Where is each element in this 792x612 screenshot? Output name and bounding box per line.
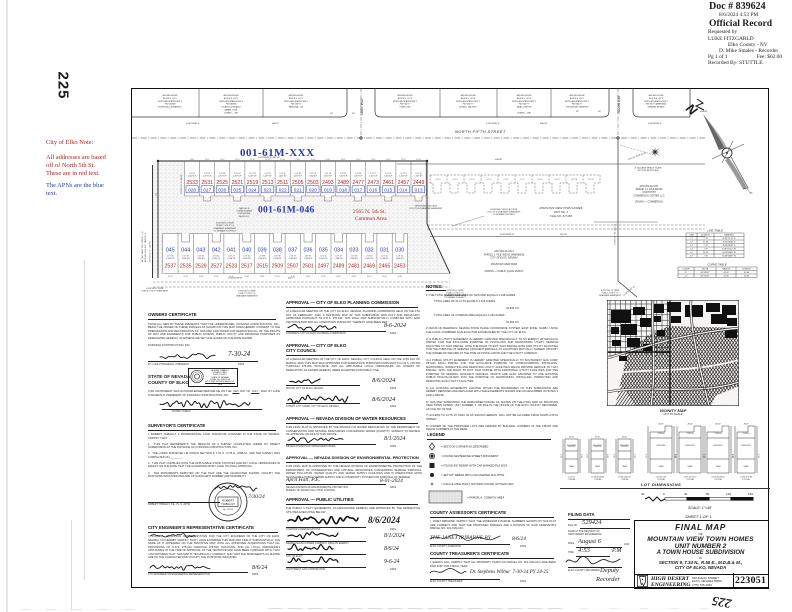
svg-text:2533: 2533 <box>186 180 198 186</box>
svg-text:41.00': 41.00' <box>336 276 341 278</box>
svg-text:40.00': 40.00' <box>658 423 664 426</box>
svg-text:LOTS 32,34,36: LOTS 32,34,36 <box>591 475 605 478</box>
svg-text:15.10': 15.10' <box>220 159 225 161</box>
svg-text:1,467 S.F.: 1,467 S.F. <box>233 175 242 177</box>
svg-text:2449: 2449 <box>413 180 425 186</box>
svg-text:BLOCK G, LOT 7: BLOCK G, LOT 7 <box>163 98 178 100</box>
svg-text:DELTA: DELTA <box>702 268 709 271</box>
svg-text:FILE 263604: FILE 263604 <box>226 103 237 106</box>
svg-text:41.00': 41.00' <box>382 276 387 278</box>
svg-text:2481: 2481 <box>348 264 360 270</box>
svg-text:PORCH: PORCH <box>658 433 665 435</box>
svg-text:1,467 S.F.: 1,467 S.F. <box>278 175 287 177</box>
svg-text:30.5': 30.5' <box>635 453 637 458</box>
svg-text:204.88': 204.88' <box>494 158 503 161</box>
svg-text:2517: 2517 <box>241 264 253 270</box>
svg-text:1,568 S.F.: 1,568 S.F. <box>289 258 298 260</box>
svg-text:30': 30' <box>598 111 601 113</box>
svg-text:YARD: YARD <box>569 465 575 468</box>
svg-text:024: 024 <box>248 188 256 194</box>
svg-text:APN 001-612-001: APN 001-612-001 <box>288 94 304 97</box>
svg-text:2523: 2523 <box>226 264 238 270</box>
svg-text:BUILDING: BUILDING <box>714 445 723 447</box>
svg-text:042: 042 <box>212 248 221 254</box>
svg-text:001-61M-046: 001-61M-046 <box>258 206 315 216</box>
svg-text:LOT 4: LOT 4 <box>470 178 475 181</box>
svg-text:S 0°01'12" W 259.16': S 0°01'12" W 259.16' <box>615 223 617 245</box>
svg-text:41.00': 41.00' <box>260 276 265 278</box>
svg-text:N 89°58'48" W: N 89°58'48" W <box>500 233 515 236</box>
svg-text:001-61M-XXX: 001-61M-XXX <box>240 147 315 159</box>
svg-text:LOT 7: LOT 7 <box>521 179 527 181</box>
svg-text:2513: 2513 <box>262 180 274 186</box>
svg-text:BUILDING: BUILDING <box>686 445 695 447</box>
svg-text:RAFAEL, ET AL: RAFAEL, ET AL <box>224 109 237 112</box>
svg-text:= SECTION CORNER AS DESCRIBED: = SECTION CORNER AS DESCRIBED <box>441 445 488 449</box>
svg-text:LINE: LINE <box>689 235 694 237</box>
svg-text:NORTH 40 ESTATES UNIT 1: NORTH 40 ESTATES UNIT 1 <box>456 100 480 103</box>
svg-text:GENERAL SEVARG: GENERAL SEVARG <box>648 106 665 109</box>
svg-text:2489: 2489 <box>333 264 345 270</box>
svg-text:028: 028 <box>188 188 196 194</box>
svg-text:41.00': 41.00' <box>352 276 357 278</box>
svg-text:015: 015 <box>384 188 392 194</box>
svg-text:2519: 2519 <box>247 180 259 186</box>
svg-text:CURVE TABLE: CURVE TABLE <box>707 263 726 267</box>
svg-text:1,568 S.F.: 1,568 S.F. <box>166 258 175 260</box>
svg-text:NORTH 40 ESTATES UNIT 1: NORTH 40 ESTATES UNIT 1 <box>284 100 308 103</box>
svg-text:BUILDING: BUILDING <box>657 445 666 447</box>
svg-text:TAOMA WAY: TAOMA WAY <box>617 94 621 114</box>
svg-text:TYPICAL: TYPICAL <box>686 478 694 481</box>
svg-text:1"=40': 1"=40' <box>745 188 754 196</box>
svg-text:13.00: 13.00 <box>723 276 729 278</box>
svg-text:APN 001-612-002: APN 001-612-002 <box>223 94 239 97</box>
svg-text:033: 033 <box>349 248 358 254</box>
svg-text:PORCH: PORCH <box>715 433 722 435</box>
svg-text:025: 025 <box>233 188 241 194</box>
svg-text:APN 001-012-015 PARCEL 2: APN 001-012-015 PARCEL 2 <box>144 232 147 263</box>
svg-text:15.10': 15.10' <box>326 159 331 161</box>
svg-text:MOUNTAIN VIEW PARK: MOUNTAIN VIEW PARK <box>491 263 518 266</box>
svg-text:90°00'00": 90°00'00" <box>701 276 710 278</box>
svg-text:027: 027 <box>203 188 211 194</box>
svg-text:FILE 163777: FILE 163777 <box>400 104 412 106</box>
svg-text:2493: 2493 <box>322 180 334 186</box>
svg-text:1,467 S.F.: 1,467 S.F. <box>218 175 227 177</box>
svg-text:41.00': 41.00' <box>199 276 204 278</box>
svg-text:YARD: YARD <box>595 465 601 468</box>
svg-text:S 89°58'48" E: S 89°58'48" E <box>648 122 662 125</box>
svg-text:1.025 ACRES: 1.025 ACRES <box>238 212 251 215</box>
svg-text:41.00': 41.00' <box>214 276 219 278</box>
svg-text:APN 001-612-003: APN 001-612-003 <box>162 94 179 97</box>
svg-text:TYPICAL: TYPICAL <box>657 478 665 481</box>
svg-text:1,568 S.F.: 1,568 S.F. <box>273 258 282 260</box>
svg-text:N 44°58'48" W: N 44°58'48" W <box>722 255 737 258</box>
svg-text:026: 026 <box>218 188 226 194</box>
svg-text:346.03': 346.03' <box>540 122 548 125</box>
svg-text:LOT 31: LOT 31 <box>568 476 574 478</box>
svg-text:15.10': 15.10' <box>401 159 406 161</box>
svg-text:IN CONCRETE PIER: IN CONCRETE PIER <box>638 170 659 172</box>
svg-text:031: 031 <box>380 248 389 254</box>
svg-text:30': 30' <box>330 113 333 115</box>
svg-text:SANDOVAL, LUZ: SANDOVAL, LUZ <box>289 106 304 109</box>
svg-text:LOTS 26,28,30: LOTS 26,28,30 <box>712 476 726 478</box>
svg-text:1,568 S.F.: 1,568 S.F. <box>396 258 405 260</box>
svg-text:TYREK, ORO: TYREK, ORO <box>399 107 411 109</box>
svg-text:APN 001-612-003: APN 001-612-003 <box>516 94 533 97</box>
svg-text:N 89°58'48" W: N 89°58'48" W <box>228 277 243 280</box>
svg-text:2509: 2509 <box>272 264 284 270</box>
svg-text:= CALCULATED POINT, NOTHING FO: = CALCULATED POINT, NOTHING FOUND, NOTHI… <box>441 482 514 486</box>
svg-text:1,467 S.F.: 1,467 S.F. <box>263 175 272 177</box>
svg-text:1,467 S.F.: 1,467 S.F. <box>188 175 197 177</box>
svg-text:2521: 2521 <box>232 180 244 186</box>
svg-text:TYPICAL: TYPICAL <box>568 478 576 481</box>
svg-text:020: 020 <box>309 188 317 194</box>
svg-text:PORCH: PORCH <box>687 433 694 435</box>
svg-text:NORTH FIFTH STREET: NORTH FIFTH STREET <box>455 129 506 134</box>
svg-text:EXISTING PUBLIC ACCESS,: EXISTING PUBLIC ACCESS, <box>490 208 518 211</box>
svg-text:No. 20752: No. 20752 <box>223 509 234 511</box>
svg-text:15.10': 15.10' <box>371 159 376 161</box>
svg-text:TYPICAL: TYPICAL <box>714 478 722 481</box>
svg-text:41.00': 41.00' <box>306 276 311 278</box>
svg-text:30.5': 30.5' <box>759 453 761 458</box>
svg-text:30': 30' <box>576 111 579 113</box>
svg-text:013: 013 <box>415 188 423 194</box>
svg-text:LOT 2: LOT 2 <box>436 179 441 181</box>
svg-text:2527: 2527 <box>210 264 222 270</box>
svg-text:YARD: YARD <box>658 465 664 468</box>
svg-text:LOT 9: LOT 9 <box>555 179 560 181</box>
svg-text:15.10': 15.10' <box>250 159 255 161</box>
svg-text:YOUNGBLUM, CAMERON: YOUNGBLUM, CAMERON <box>566 106 589 109</box>
svg-text:NORTH 40 ESTATES UNIT 1: NORTH 40 ESTATES UNIT 1 <box>644 100 668 103</box>
svg-text:2535: 2535 <box>180 264 192 270</box>
svg-text:1,568 S.F.: 1,568 S.F. <box>365 258 374 260</box>
svg-text:LENGTH: LENGTH <box>742 269 751 271</box>
svg-text:30': 30' <box>352 113 355 115</box>
svg-text:41.00': 41.00' <box>183 276 188 278</box>
svg-text:S 89°58'48" E: S 89°58'48" E <box>723 241 736 244</box>
svg-text:DRAINAGE EASEMENT: DRAINAGE EASEMENT <box>599 294 622 297</box>
svg-text:41.00': 41.00' <box>168 276 173 278</box>
svg-text:043: 043 <box>196 248 205 254</box>
svg-text:= PARCEL A, COMMON AREA: = PARCEL A, COMMON AREA <box>467 496 504 500</box>
svg-text:023: 023 <box>264 188 272 194</box>
svg-text:TYPICAL: TYPICAL <box>594 478 602 481</box>
svg-text:1,467 S.F.: 1,467 S.F. <box>414 175 423 177</box>
svg-text:36.00': 36.00' <box>743 424 749 426</box>
svg-text:71.5': 71.5' <box>675 453 677 458</box>
svg-text:31.00': 31.00' <box>569 437 575 439</box>
svg-text:31.00': 31.00' <box>622 437 628 439</box>
svg-text:ZAVAL, LYNETTE: ZAVAL, LYNETTE <box>516 106 533 109</box>
svg-text:30.5': 30.5' <box>582 453 584 458</box>
svg-text:PUBLIC UTILITY EASEMENT: PUBLIC UTILITY EASEMENT <box>142 289 170 292</box>
svg-text:040: 040 <box>242 248 251 254</box>
svg-text:NORTH 40 ESTATES UNIT 2: NORTH 40 ESTATES UNIT 2 <box>219 100 243 103</box>
svg-text:1,467 S.F.: 1,467 S.F. <box>384 175 393 177</box>
svg-text:LOT 8: LOT 8 <box>538 179 543 181</box>
svg-text:= SET 5/8" REBAR WITH CAP MARK: = SET 5/8" REBAR WITH CAP MARKED PLS 207… <box>441 473 505 477</box>
svg-text:2477: 2477 <box>352 180 364 186</box>
svg-text:1,568 S.F.: 1,568 S.F. <box>212 258 221 260</box>
svg-text:APN 001-612-002: APN 001-612-002 <box>397 94 413 97</box>
svg-text:COMMON AREA: COMMON AREA <box>236 210 252 213</box>
svg-text:71.5': 71.5' <box>703 453 705 458</box>
svg-text:NEW PUBLIC ACCESS: NEW PUBLIC ACCESS <box>415 205 438 208</box>
svg-text:LOTS 15,25,27: LOTS 15,25,27 <box>684 476 698 478</box>
svg-text:71.5': 71.5' <box>587 453 589 458</box>
svg-text:RODRIGUEZ, ALEJANDRO: RODRIGUEZ, ALEJANDRO <box>158 106 182 109</box>
svg-text:2503: 2503 <box>307 180 319 186</box>
svg-text:2465: 2465 <box>379 264 391 270</box>
svg-text:037: 037 <box>288 248 297 254</box>
svg-text:= FOUND CENTERLINE STREET MONU: = FOUND CENTERLINE STREET MONUMENT <box>441 454 499 458</box>
svg-text:TYPICAL: TYPICAL <box>742 478 750 481</box>
svg-text:VELASCO-GONZALEZ: VELASCO-GONZALEZ <box>221 106 241 109</box>
svg-text:COMMERCIAL CENTER, LLC: COMMERCIAL CENTER, LLC <box>633 194 664 197</box>
svg-text:LINE TABLE: LINE TABLE <box>707 229 723 233</box>
svg-text:038: 038 <box>273 248 282 254</box>
svg-text:L4: L4 <box>690 248 693 251</box>
svg-text:2501: 2501 <box>302 264 314 270</box>
svg-text:017: 017 <box>354 188 362 194</box>
svg-text:PARCEL A: PARCEL A <box>239 207 250 210</box>
svg-text:LOTS 33,35,37: LOTS 33,35,37 <box>618 476 632 478</box>
svg-text:CITY OF ELKO, NEVADA: CITY OF ELKO, NEVADA <box>490 257 518 260</box>
svg-text:40.00': 40.00' <box>687 423 693 426</box>
svg-text:APN 001-012-047: APN 001-012-047 <box>639 185 659 188</box>
svg-text:15.10': 15.10' <box>205 159 210 161</box>
svg-text:BLOCK A, LOT 8: BLOCK A, LOT 8 <box>649 97 664 100</box>
svg-text:DRAINAGE EASEMENT: DRAINAGE EASEMENT <box>236 294 259 297</box>
svg-text:15.10': 15.10' <box>280 159 285 161</box>
svg-text:254.88': 254.88' <box>699 110 708 113</box>
svg-text:1,467 S.F.: 1,467 S.F. <box>203 175 212 177</box>
svg-text:15.10': 15.10' <box>356 159 361 161</box>
svg-text:2529: 2529 <box>195 264 207 270</box>
svg-text:BLOCK G, LOT 8: BLOCK G, LOT 8 <box>398 98 413 100</box>
svg-text:ZONING — PUBLIC QUASI PUBLIC: ZONING — PUBLIC QUASI PUBLIC <box>483 270 523 273</box>
svg-text:15.10': 15.10' <box>296 159 301 161</box>
svg-text:1,467 S.F.: 1,467 S.F. <box>324 175 333 177</box>
svg-text:LOTS 29 & 45: LOTS 29 & 45 <box>740 475 753 478</box>
svg-text:2473: 2473 <box>367 180 379 186</box>
svg-text:11.00: 11.00 <box>703 242 709 244</box>
svg-text:APN 001-612-004: APN 001-612-004 <box>460 94 476 97</box>
svg-text:15.10': 15.10' <box>265 159 270 161</box>
svg-text:N: N <box>683 101 700 119</box>
svg-text:1,467 S.F.: 1,467 S.F. <box>369 175 378 177</box>
svg-text:016: 016 <box>369 188 377 194</box>
svg-text:030: 030 <box>395 248 404 254</box>
svg-text:20.42: 20.42 <box>743 275 750 278</box>
svg-text:N 89°58'48" W: N 89°58'48" W <box>722 251 737 254</box>
svg-text:TO REMAIN IN EFFECT: TO REMAIN IN EFFECT <box>214 229 238 232</box>
svg-text:S 44°58'48" E: S 44°58'48" E <box>723 244 736 247</box>
svg-text:L1: L1 <box>690 238 692 240</box>
svg-text:BLOCK G, LOT 4: BLOCK G, LOT 4 <box>461 97 475 100</box>
svg-text:045: 045 <box>166 248 175 254</box>
svg-text:1,568 S.F.: 1,568 S.F. <box>258 258 267 260</box>
svg-text:15.10': 15.10' <box>311 159 316 161</box>
svg-text:30.5': 30.5' <box>608 453 610 458</box>
svg-text:44,662 S.F.: 44,662 S.F. <box>239 215 250 218</box>
svg-text:71.5': 71.5' <box>561 453 563 458</box>
svg-text:LOT 5: LOT 5 <box>487 179 492 181</box>
svg-text:BUILDING: BUILDING <box>620 445 629 447</box>
svg-text:N 45°01'12" E: N 45°01'12" E <box>723 237 737 240</box>
svg-text:044: 044 <box>181 248 190 254</box>
svg-text:THIBAULT: THIBAULT <box>221 502 235 506</box>
svg-text:31.42: 31.42 <box>744 271 750 274</box>
svg-text:15.10': 15.10' <box>235 159 240 161</box>
svg-text:DRAINAGE EASEMENT: DRAINAGE EASEMENT <box>214 227 238 230</box>
svg-text:LOTS 16-24: LOTS 16-24 <box>656 475 666 478</box>
svg-text:Common Area: Common Area <box>355 216 387 222</box>
svg-text:2565 N. 5th St.: 2565 N. 5th St. <box>353 209 386 215</box>
svg-text:2457: 2457 <box>398 180 410 186</box>
svg-text:BLOCK G, LOT 1: BLOCK G, LOT 1 <box>570 98 584 100</box>
svg-text:1,568 S.F.: 1,568 S.F. <box>243 258 252 260</box>
svg-text:1,568 S.F.: 1,568 S.F. <box>197 258 206 260</box>
svg-text:FILE 163777: FILE 163777 <box>572 104 584 106</box>
svg-text:15.10': 15.10' <box>386 159 391 161</box>
svg-text:20.00: 20.00 <box>722 272 729 274</box>
svg-text:11.00: 11.00 <box>703 252 709 254</box>
svg-text:FILE 263604: FILE 263604 <box>165 103 176 106</box>
svg-text:CURVE: CURVE <box>682 269 690 271</box>
svg-text:PARCEL 1A, FILE 202204: PARCEL 1A, FILE 202204 <box>636 188 664 191</box>
svg-text:2507: 2507 <box>287 264 299 270</box>
svg-text:2515: 2515 <box>256 264 268 270</box>
svg-text:BLOCK G, LOT 1: BLOCK G, LOT 1 <box>289 98 303 100</box>
svg-text:FILE 163777: FILE 163777 <box>291 104 303 106</box>
svg-text:ZONING — COMMERCIAL: ZONING — COMMERCIAL <box>634 201 664 204</box>
svg-text:= FOUND 5/8" REBAR WITH CAP MA: = FOUND 5/8" REBAR WITH CAP MARKED PLS 6… <box>441 464 508 468</box>
svg-text:UTILITY & DRAINAGE EASEMENT: UTILITY & DRAINAGE EASEMENT <box>487 211 521 214</box>
svg-text:4" SQUARE BRASS PLATE: 4" SQUARE BRASS PLATE <box>634 167 662 170</box>
svg-text:1,568 S.F.: 1,568 S.F. <box>227 258 236 260</box>
svg-text:2537: 2537 <box>165 264 177 270</box>
svg-text:2505: 2505 <box>292 180 304 186</box>
svg-text:S 45°01'12" W: S 45°01'12" W <box>722 248 736 251</box>
svg-text:BUILDING: BUILDING <box>742 445 751 447</box>
svg-text:71.5': 71.5' <box>733 453 735 458</box>
svg-text:90°00'00": 90°00'00" <box>701 272 710 274</box>
svg-text:UTILITY & DRAINAGE EASEMENT: UTILITY & DRAINAGE EASEMENT <box>409 207 443 210</box>
svg-text:FILE 56777 (AMENDED): FILE 56777 (AMENDED) <box>646 103 667 106</box>
svg-text:LOT 10: LOT 10 <box>571 179 577 181</box>
svg-text:LOT 11: LOT 11 <box>588 179 594 181</box>
svg-text:BLOCK G, LOT 2: BLOCK G, LOT 2 <box>517 98 531 100</box>
svg-text:15.10': 15.10' <box>416 159 421 161</box>
svg-text:BLOCK G, LOT 3: BLOCK G, LOT 3 <box>224 98 239 100</box>
svg-text:264.37': 264.37' <box>271 122 280 125</box>
svg-text:41.00': 41.00' <box>367 276 372 278</box>
svg-text:S 89°58'48" E: S 89°58'48" E <box>486 122 500 125</box>
svg-text:2525: 2525 <box>216 180 228 186</box>
svg-text:022: 022 <box>279 188 287 194</box>
svg-text:NORTH 40 ESTATES UNIT 2: NORTH 40 ESTATES UNIT 2 <box>158 100 182 103</box>
svg-text:1,568 S.F.: 1,568 S.F. <box>304 258 313 260</box>
svg-text:S 89°58'48" E: S 89°58'48" E <box>186 122 200 125</box>
svg-text:018: 018 <box>339 188 347 194</box>
svg-text:FND 3/4" PIPE NO ID: FND 3/4" PIPE NO ID <box>627 151 647 161</box>
svg-text:2497: 2497 <box>318 264 330 270</box>
svg-text:NORTH 5TH: NORTH 5TH <box>642 192 655 194</box>
svg-text:1,568 S.F.: 1,568 S.F. <box>380 258 389 260</box>
svg-text:FILE 163777: FILE 163777 <box>519 104 531 106</box>
svg-text:ATLAS LAND HOLDINGS, LLC: ATLAS LAND HOLDINGS, LLC <box>141 231 144 263</box>
svg-text:2461: 2461 <box>383 180 395 186</box>
svg-text:PORCH: PORCH <box>743 433 750 435</box>
svg-text:TO REMAIN IN EFFECT: TO REMAIN IN EFFECT <box>493 213 517 216</box>
svg-text:1,467 S.F.: 1,467 S.F. <box>248 175 257 177</box>
svg-text:1,568 S.F.: 1,568 S.F. <box>319 258 328 260</box>
svg-text:ZONING — R40: ZONING — R40 <box>223 111 238 114</box>
svg-text:1,467 S.F.: 1,467 S.F. <box>309 175 318 177</box>
svg-text:019: 019 <box>324 188 332 194</box>
svg-text:APN 001-011-009: APN 001-011-009 <box>648 94 664 97</box>
svg-text:2489: 2489 <box>337 180 349 186</box>
svg-text:31.00': 31.00' <box>595 437 601 439</box>
svg-text:RADIUS: RADIUS <box>722 268 730 271</box>
svg-text:316.05': 316.05' <box>560 234 568 236</box>
svg-text:TYPICAL: TYPICAL <box>621 478 629 481</box>
svg-text:2469: 2469 <box>363 264 375 270</box>
svg-text:YARD: YARD <box>687 465 693 468</box>
svg-text:1,467 S.F.: 1,467 S.F. <box>399 175 408 177</box>
svg-text:APN 001-612-002: APN 001-612-002 <box>569 94 585 97</box>
svg-text:41.00': 41.00' <box>321 276 326 278</box>
svg-text:036: 036 <box>304 248 313 254</box>
svg-text:039: 039 <box>258 248 267 254</box>
svg-text:FILE 163777: FILE 163777 <box>463 104 475 106</box>
svg-text:NORTH 40 ESTATES UNIT 1: NORTH 40 ESTATES UNIT 1 <box>393 100 417 103</box>
svg-text:71.5': 71.5' <box>646 453 648 458</box>
svg-text:NORTH 40 ESTATES UNIT 1: NORTH 40 ESTATES UNIT 1 <box>512 100 536 103</box>
svg-text:BUILDING: BUILDING <box>593 445 602 447</box>
svg-text:041: 041 <box>227 248 236 254</box>
svg-text:41.00': 41.00' <box>275 276 280 278</box>
svg-text:YARD: YARD <box>715 465 721 468</box>
svg-text:N 0°01'12" E 132.00': N 0°01'12" E 132.00' <box>150 241 152 262</box>
svg-text:40.00': 40.00' <box>715 423 721 426</box>
svg-text:LOT 3: LOT 3 <box>453 179 458 181</box>
svg-text:1,568 S.F.: 1,568 S.F. <box>181 258 190 260</box>
svg-text:ROWELL, ZACKERY: ROWELL, ZACKERY <box>459 106 477 109</box>
svg-text:2453: 2453 <box>394 264 406 270</box>
svg-text:035: 035 <box>319 248 328 254</box>
svg-text:BUILDING: BUILDING <box>567 445 576 447</box>
svg-text:014: 014 <box>399 188 407 194</box>
svg-text:021: 021 <box>294 188 302 194</box>
svg-text:C1: C1 <box>685 272 688 274</box>
svg-text:NORTH 40 ESTATES UNIT 1: NORTH 40 ESTATES UNIT 1 <box>565 100 589 103</box>
svg-text:LENGTH: LENGTH <box>701 235 710 237</box>
svg-text:032: 032 <box>365 248 374 254</box>
svg-text:432.77': 432.77' <box>288 277 296 280</box>
svg-text:2531: 2531 <box>201 180 213 186</box>
svg-text:15.10': 15.10' <box>190 159 195 161</box>
svg-text:41.00': 41.00' <box>245 276 250 278</box>
